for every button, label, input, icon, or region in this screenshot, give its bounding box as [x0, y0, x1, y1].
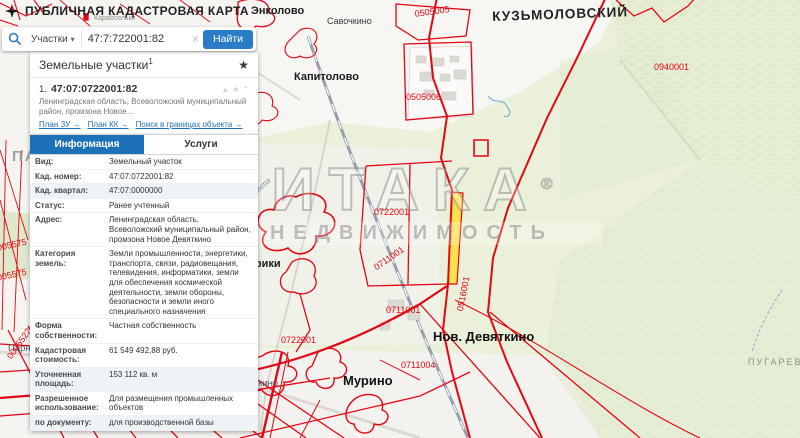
- search-input[interactable]: [82, 33, 188, 45]
- table-row: Разрешенное использование: Для размещени…: [30, 391, 258, 415]
- table-row: Уточненная площадь: 153 112 кв. м: [30, 367, 258, 391]
- table-row: Адрес: Ленинградская область, Всеволожск…: [30, 213, 258, 247]
- cadastral-number-label: 0722001: [374, 207, 409, 217]
- row-label: Категория земель:: [30, 247, 104, 319]
- table-row: Вид: Земельный участок: [30, 155, 258, 169]
- row-value: Для размещения промышленных объектов: [104, 391, 258, 415]
- plan-kk-link[interactable]: План КК →: [88, 120, 129, 129]
- map-label-place: Савочкино: [327, 16, 372, 26]
- row-value-link[interactable]: 47:07:0722001:82: [104, 169, 258, 184]
- row-label: Кадастровая стоимость:: [30, 343, 104, 367]
- map-label-place: Нов. Девяткино: [433, 329, 534, 344]
- item-address-preview: Ленинградская область, Всеволожский муни…: [39, 97, 249, 117]
- row-value: 153 112 кв. м: [104, 367, 258, 391]
- row-value: Частная собственность: [104, 319, 258, 343]
- panel-title: Земельные участки1: [39, 57, 153, 72]
- table-row: Форма собственности: Частная собственнос…: [30, 319, 258, 343]
- row-value: Земли промышленности, энергетики, трансп…: [104, 247, 258, 319]
- table-row: Кадастровая стоимость: 61 549 492,88 руб…: [30, 343, 258, 367]
- row-label: Разрешенное использование:: [30, 391, 104, 415]
- cadastral-number-label: 0711001: [386, 305, 420, 315]
- row-label: Адрес:: [30, 213, 104, 247]
- item-index: 1.: [39, 84, 47, 95]
- row-value: Ранее учтенный: [104, 198, 258, 213]
- row-value: Земельный участок: [104, 155, 258, 169]
- row-label: Статус:: [30, 198, 104, 213]
- item-cadastral-number: 47:07:0722001:82: [51, 83, 221, 95]
- table-row: Кад. квартал: 47:07:0000000: [30, 184, 258, 199]
- search-icon[interactable]: [8, 32, 22, 46]
- map-label-place: Капитолово: [294, 71, 359, 83]
- tab-services[interactable]: Услуги: [144, 135, 258, 154]
- search-category-dropdown[interactable]: Участки ▾: [25, 31, 82, 47]
- row-label: Форма собственности:: [30, 319, 104, 343]
- map-label-district: ПУГАРЕВО: [748, 357, 800, 367]
- row-label: Вид:: [30, 155, 104, 169]
- star-icon[interactable]: ★: [232, 85, 239, 94]
- row-label: по документу:: [30, 416, 104, 431]
- cadastral-number-label: 0711004: [401, 360, 435, 370]
- app-title: ПУБЛИЧНАЯ КАДАСТРОВАЯ КАРТА: [25, 4, 249, 18]
- clear-search-icon[interactable]: ×: [188, 32, 203, 46]
- table-row: Кад. номер: 47:07:0722001:82: [30, 169, 258, 184]
- cadastral-number-label: 0505006: [406, 92, 441, 102]
- pkk-logo-icon: [5, 4, 19, 18]
- table-row: Категория земель: Земли промышленности, …: [30, 247, 258, 319]
- row-value: 61 549 492,88 руб.: [104, 343, 258, 367]
- tab-information[interactable]: Информация: [30, 135, 144, 154]
- search-bar: Участки ▾ × Найти: [2, 27, 256, 51]
- map-label-place: Мурино: [343, 373, 393, 388]
- search-submit-button[interactable]: Найти: [203, 30, 253, 49]
- search-in-bounds-link[interactable]: Поиск в границах объекта →: [136, 120, 243, 129]
- row-value-link[interactable]: 47:07:0000000: [104, 184, 258, 199]
- panel-tabs: Информация Услуги: [30, 134, 258, 155]
- favorites-star-icon[interactable]: ★: [238, 58, 249, 72]
- row-label: Уточненная площадь:: [30, 367, 104, 391]
- warning-icon[interactable]: ▲: [221, 85, 229, 94]
- map-label-place: Энколово: [251, 5, 304, 17]
- table-row: по документу: для производственной базы: [30, 416, 258, 431]
- row-label: Кад. номер:: [30, 169, 104, 184]
- row-label: Кад. квартал:: [30, 184, 104, 199]
- cadastral-number-label: 0940001: [654, 62, 689, 72]
- cadastral-number-label: 0722001: [281, 335, 316, 345]
- plan-zu-link[interactable]: План ЗУ →: [39, 120, 81, 129]
- parcel-list-item[interactable]: 1. 47:07:0722001:82 ▲ ★ ⌃ Ленинградская …: [30, 78, 258, 134]
- row-value: Ленинградская область, Всеволожский муни…: [104, 213, 258, 247]
- parcel-info-panel: Земельные участки1 ★ 1. 47:07:0722001:82…: [30, 52, 258, 431]
- search-category-label: Участки: [31, 34, 68, 45]
- app-header: ПУБЛИЧНАЯ КАДАСТРОВАЯ КАРТА: [5, 4, 249, 18]
- chevron-down-icon: ▾: [71, 35, 75, 44]
- row-value: для производственной базы: [104, 416, 258, 431]
- table-row: Статус: Ранее учтенный: [30, 198, 258, 213]
- parcel-properties-table: Вид: Земельный участок Кад. номер: 47:07…: [30, 155, 258, 431]
- collapse-icon[interactable]: ⌃: [242, 85, 249, 94]
